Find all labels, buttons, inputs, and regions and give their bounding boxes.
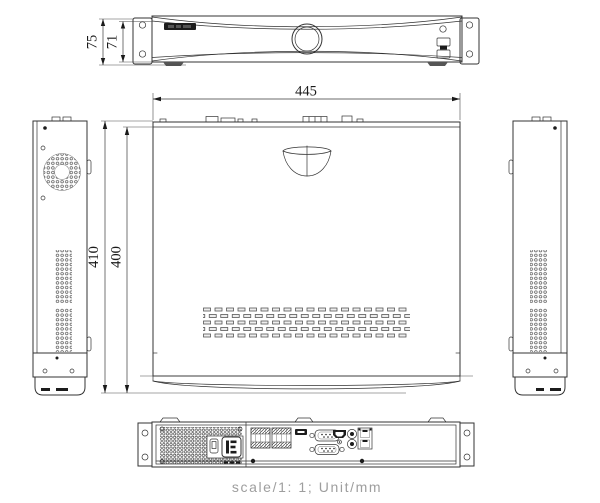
rear-left-ear-hole-2 <box>142 454 148 460</box>
brand-logo <box>164 23 196 30</box>
front-bezel-top-projection <box>140 376 473 389</box>
terminal-block-2 <box>272 428 291 448</box>
dim-top-width: 445 <box>153 84 460 121</box>
right-block-screw-dot <box>544 357 547 360</box>
rear-view <box>138 418 474 467</box>
right-side-front-block <box>513 353 567 377</box>
scale-unit-note: scale/1: 1; Unit/mm <box>232 479 382 495</box>
front-right-ear-holes <box>466 22 472 57</box>
nvr-dimension-drawing: 75 71 <box>0 0 600 503</box>
left-side-screw-top <box>43 126 47 130</box>
rear-left-rack-ear <box>138 423 152 466</box>
front-left-ear-holes <box>139 22 145 57</box>
usb-port <box>295 429 307 435</box>
psu-bottom-vents <box>224 462 240 464</box>
top-view <box>140 116 473 389</box>
right-side-bezel <box>515 377 565 395</box>
ir-indicator <box>440 26 446 32</box>
serial-port <box>310 445 344 455</box>
usb-ports-icon <box>437 38 450 58</box>
left-block-screw-dot <box>56 357 59 360</box>
right-side-vent-strip-2 <box>530 308 547 352</box>
front-view <box>133 16 479 66</box>
left-side-hole-2 <box>41 196 45 200</box>
rca-jack-audio-in <box>347 429 356 438</box>
jog-dial <box>292 24 322 54</box>
front-left-foot <box>163 62 184 66</box>
right-block-hole-1 <box>526 369 530 373</box>
right-side-view <box>509 117 567 395</box>
left-side-top-tabs <box>52 117 71 121</box>
dim-71-label: 71 <box>105 35 121 50</box>
right-side-vent-strip-1 <box>530 250 547 303</box>
rear-connectors-top-edge <box>160 116 363 122</box>
left-block-hole-1 <box>43 369 47 373</box>
dim-445-label: 445 <box>295 84 317 100</box>
rear-right-ear-hole-1 <box>464 430 470 436</box>
rear-right-rack-ear <box>460 423 474 466</box>
left-block-hole-2 <box>70 369 74 373</box>
left-side-bezel <box>35 377 85 395</box>
top-vent-grid <box>203 308 410 341</box>
dimension-drawing-canvas: 75 71 <box>0 0 600 503</box>
dim-depths: 410 400 <box>86 121 406 393</box>
left-side-view <box>33 117 91 395</box>
rear-top-feet <box>160 418 446 422</box>
rear-left-ear-hole-1 <box>142 430 148 436</box>
terminal-block-1 <box>251 428 270 448</box>
dim-410-label: 410 <box>86 246 102 268</box>
right-side-top-tabs <box>532 117 551 121</box>
rj45-port <box>358 428 372 449</box>
right-side-edge-bumps <box>509 160 513 351</box>
rear-right-ear-hole-2 <box>464 454 470 460</box>
left-side-vent-strip-1 <box>55 250 72 303</box>
left-side-front-block <box>33 353 87 377</box>
dim-75-label: 75 <box>85 35 101 50</box>
left-side-vent-strip-2 <box>55 308 72 352</box>
dim-400-label: 400 <box>109 246 125 268</box>
rear-seam-screw-2 <box>360 459 364 463</box>
right-side-screw-top <box>553 126 557 130</box>
left-side-hole-1 <box>41 146 45 150</box>
dome-lens <box>283 146 331 176</box>
rca-jack-audio-out <box>347 439 356 448</box>
front-right-foot <box>427 62 448 66</box>
fan-vent <box>44 154 81 191</box>
rear-seam-screw-1 <box>251 459 255 463</box>
right-block-hole-2 <box>554 369 558 373</box>
